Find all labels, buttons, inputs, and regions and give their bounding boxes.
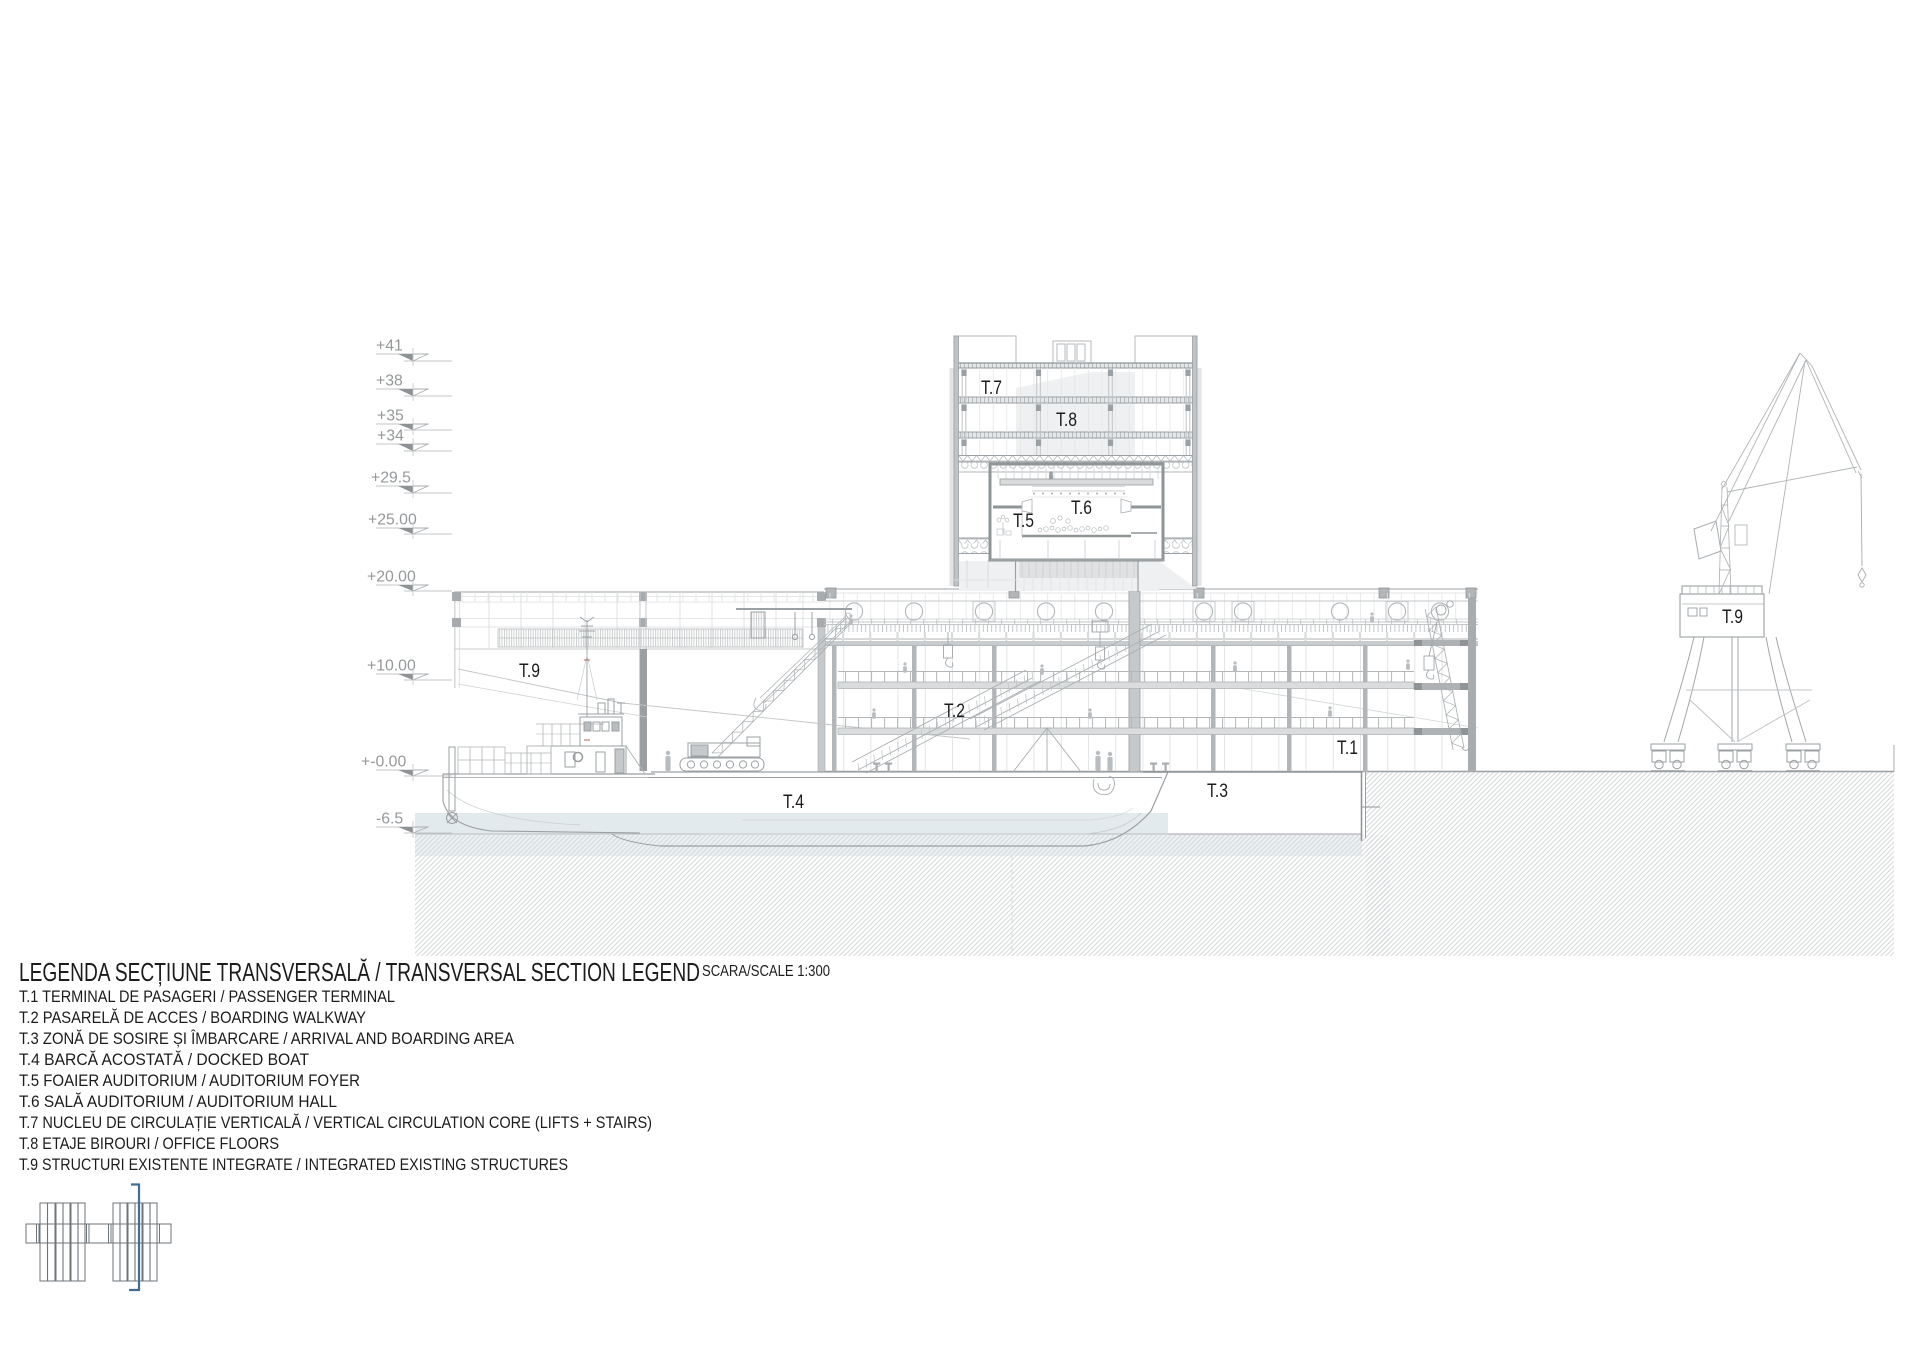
svg-text:+41: +41 — [376, 338, 403, 355]
svg-text:T.9: T.9 — [1722, 607, 1743, 628]
svg-text:T.9: T.9 — [519, 661, 540, 682]
svg-text:LEGENDA SECȚIUNE TRANSVERSALĂ: LEGENDA SECȚIUNE TRANSVERSALĂ / TRANSVER… — [19, 958, 700, 987]
svg-text:T.3 ZONĂ DE SOSIRE ȘI ÎMBARCAR: T.3 ZONĂ DE SOSIRE ȘI ÎMBARCARE / ARRIVA… — [19, 1029, 514, 1048]
svg-text:-6.5: -6.5 — [376, 811, 403, 828]
svg-text:+25.00: +25.00 — [368, 512, 417, 529]
svg-text:+34: +34 — [377, 428, 404, 445]
svg-text:T.2: T.2 — [944, 701, 965, 722]
svg-text:T.4 BARCĂ ACOSTATĂ / DOCKED BO: T.4 BARCĂ ACOSTATĂ / DOCKED BOAT — [19, 1050, 309, 1069]
svg-text:T.3: T.3 — [1207, 781, 1228, 802]
svg-text:T.9 STRUCTURI EXISTENTE INTEGR: T.9 STRUCTURI EXISTENTE INTEGRATE / INTE… — [19, 1156, 568, 1174]
svg-text:+20.00: +20.00 — [367, 569, 416, 586]
svg-text:T.7: T.7 — [981, 378, 1002, 399]
svg-text:T.1 TERMINAL DE PASAGERI / PAS: T.1 TERMINAL DE PASAGERI / PASSENGER TER… — [19, 988, 395, 1006]
svg-text:T.5 FOAIER AUDITORIUM / AUDITO: T.5 FOAIER AUDITORIUM / AUDITORIUM FOYER — [19, 1072, 360, 1090]
svg-text:T.8 ETAJE BIROURI / OFFICE FLO: T.8 ETAJE BIROURI / OFFICE FLOORS — [19, 1135, 279, 1153]
svg-text:+29.5: +29.5 — [371, 470, 411, 487]
svg-text:T.6 SALĂ AUDITORIUM / AUDITORI: T.6 SALĂ AUDITORIUM / AUDITORIUM HALL — [19, 1092, 337, 1111]
svg-text:+38: +38 — [376, 373, 403, 390]
svg-text:SCARA/SCALE 1:300: SCARA/SCALE 1:300 — [702, 963, 830, 980]
svg-text:+-0.00: +-0.00 — [361, 754, 406, 771]
svg-text:T.8: T.8 — [1056, 410, 1077, 431]
svg-text:T.2 PASARELĂ DE ACCES / BOARDI: T.2 PASARELĂ DE ACCES / BOARDING WALKWAY — [19, 1008, 366, 1027]
svg-text:+10.00: +10.00 — [367, 658, 416, 675]
svg-text:T.6: T.6 — [1071, 498, 1092, 519]
svg-text:+35: +35 — [377, 408, 404, 425]
svg-text:T.5: T.5 — [1013, 511, 1034, 532]
svg-text:T.1: T.1 — [1337, 738, 1358, 759]
svg-text:T.7 NUCLEU DE CIRCULAȚIE VERTI: T.7 NUCLEU DE CIRCULAȚIE VERTICALĂ / VER… — [19, 1113, 652, 1132]
svg-text:T.4: T.4 — [783, 792, 804, 813]
